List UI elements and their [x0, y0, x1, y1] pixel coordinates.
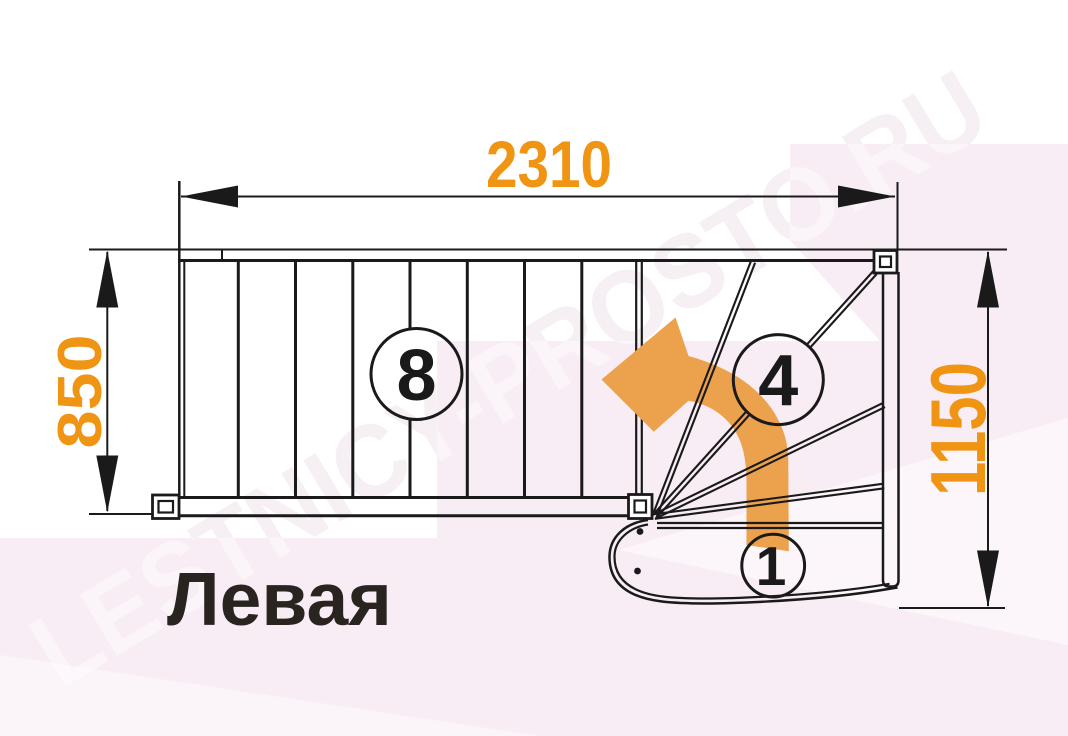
- svg-text:850: 850: [46, 335, 115, 449]
- svg-text:8: 8: [396, 336, 436, 416]
- svg-text:1: 1: [756, 535, 787, 597]
- svg-text:2310: 2310: [486, 127, 612, 201]
- svg-text:Левая: Левая: [167, 557, 392, 641]
- svg-text:4: 4: [758, 341, 798, 421]
- svg-text:1150: 1150: [914, 362, 1002, 496]
